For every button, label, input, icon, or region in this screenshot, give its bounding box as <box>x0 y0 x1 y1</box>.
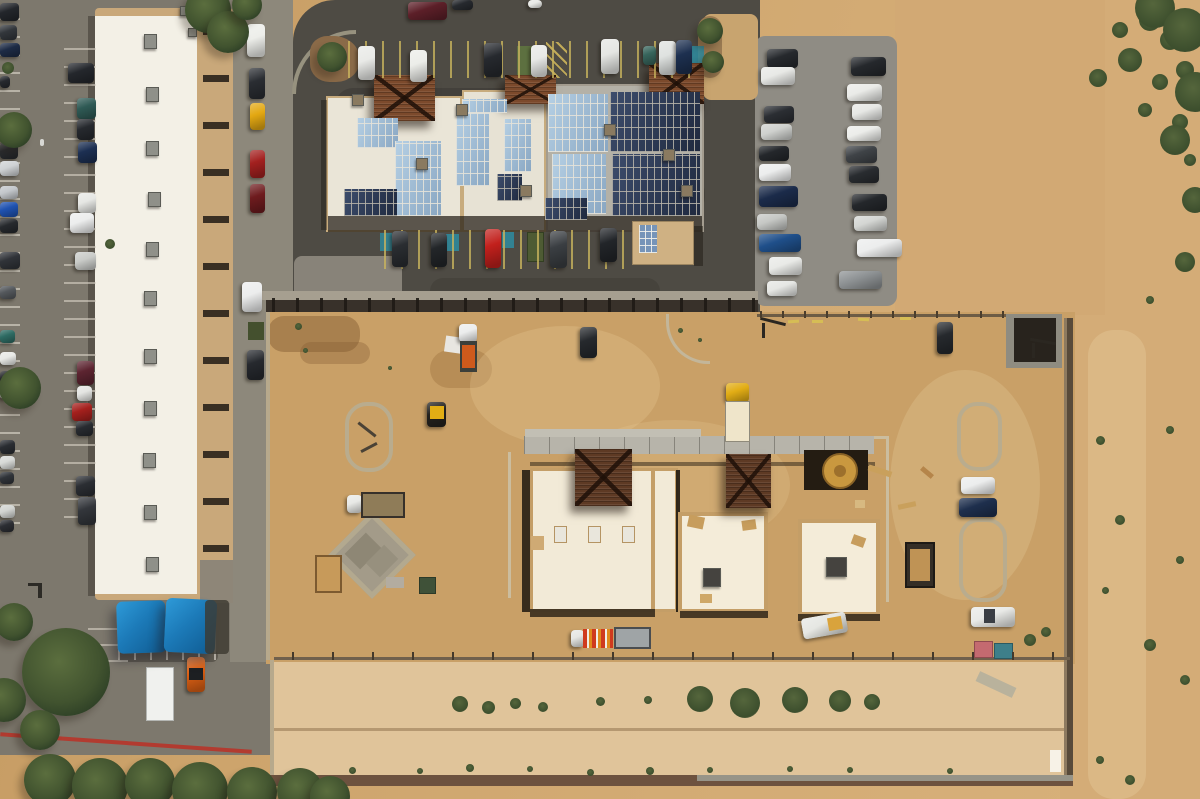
rooftop-hvac <box>144 505 157 520</box>
dump-truck-bed <box>361 492 405 518</box>
solar-roof-hvac <box>604 124 616 136</box>
fence-posts-ne <box>914 311 916 318</box>
fence-posts-ne <box>826 311 828 318</box>
desert-shrub <box>678 328 683 333</box>
parked-car <box>0 472 14 484</box>
stall-stripes-left-col2 <box>64 318 96 320</box>
solar-array <box>504 119 531 172</box>
fence-marks-mid <box>612 652 614 660</box>
construction-hvac <box>703 568 721 587</box>
stall-stripes-left-col1 <box>0 180 20 182</box>
solar-array <box>456 113 489 186</box>
parked-car <box>68 63 94 83</box>
skid-steer-cab <box>430 406 444 419</box>
wall-posts <box>584 298 587 312</box>
construction-shadow-s1 <box>530 609 655 617</box>
desert-shrub <box>587 769 594 776</box>
parked-car <box>0 3 19 21</box>
tree-canopy <box>697 18 723 44</box>
fence-posts-ne <box>980 311 982 318</box>
fence-marks-mid <box>492 652 494 660</box>
desert-shrub <box>1102 587 1109 594</box>
aerial-photo-construction-site <box>0 0 1200 799</box>
parked-car <box>410 50 427 82</box>
fence-marks-mid <box>732 652 734 660</box>
parked-car <box>959 498 997 517</box>
fence-marks-mid <box>1012 652 1014 660</box>
fence-posts-ne <box>760 311 762 318</box>
parked-car <box>0 456 15 469</box>
parked-car <box>600 228 617 262</box>
shade-canopy <box>116 600 167 654</box>
wall-posts <box>320 298 323 312</box>
old-stripe-mark <box>812 320 823 323</box>
parked-car <box>77 98 96 119</box>
wall-posts <box>440 298 443 312</box>
desert-shrub <box>596 697 605 706</box>
pedestrian <box>40 139 44 146</box>
parked-car <box>839 271 882 289</box>
parked-car <box>0 440 15 454</box>
tree-canopy <box>20 710 60 750</box>
desert-shrub <box>1096 436 1105 445</box>
stall-stripes-left-col2 <box>64 246 96 248</box>
porta-potty-green <box>419 577 436 594</box>
parked-car <box>849 166 879 183</box>
parked-car <box>392 231 408 267</box>
porta-potty-teal <box>994 643 1013 659</box>
concrete-sidewalk-upper <box>525 429 701 437</box>
fence-marks-mid <box>852 652 854 660</box>
wall-posts <box>296 298 299 312</box>
parked-car <box>759 146 789 161</box>
storefront-slots <box>203 122 229 129</box>
parked-car <box>659 41 676 75</box>
desert-shrub <box>349 767 356 774</box>
stall-stripes-main-row1 <box>467 41 469 78</box>
tree-canopy <box>317 42 347 72</box>
storefront-slots <box>203 357 229 364</box>
lumber-dumpster-wood <box>910 549 930 581</box>
patio-clutter <box>205 600 229 654</box>
solar-array <box>497 174 522 201</box>
parked-car <box>78 193 96 213</box>
stall-stripes-main-row1 <box>552 41 554 78</box>
bottom-wall-gray-cap <box>697 775 1073 781</box>
hatched-no-park-zone <box>546 42 567 78</box>
desert-shrub <box>707 767 713 773</box>
desert-shrub <box>388 366 392 370</box>
parked-car <box>0 161 19 176</box>
fence-marks-mid <box>692 652 694 660</box>
stall-stripes-left-col1 <box>0 270 20 272</box>
solar-roof-hvac <box>456 104 468 116</box>
landscape-island-a <box>345 402 393 472</box>
desert-shrub <box>1163 8 1200 52</box>
parked-car <box>0 505 15 518</box>
desert-shrub <box>1096 756 1104 764</box>
desert-shrub <box>510 698 521 709</box>
desert-shrub <box>829 690 851 712</box>
parked-car <box>250 103 265 130</box>
desert-shrub <box>864 694 880 710</box>
parked-car <box>757 214 787 230</box>
parked-car <box>601 39 619 74</box>
pickup-windshield <box>984 609 995 623</box>
shed-window-grid <box>639 225 657 253</box>
parked-car <box>852 194 887 211</box>
desert-shrub <box>1175 252 1195 272</box>
parked-car <box>78 497 96 525</box>
street-lamp-pole <box>38 585 42 598</box>
fence-marks-mid <box>892 652 894 660</box>
parked-car <box>580 327 597 358</box>
stall-stripes-main-row2 <box>520 230 522 269</box>
stall-stripes-main-row1 <box>433 41 435 78</box>
desert-shrub <box>847 767 853 773</box>
parked-car <box>77 119 94 140</box>
parked-car <box>643 46 656 65</box>
rooftop-hvac <box>144 34 157 49</box>
rooftop-hvac <box>144 349 157 364</box>
box-truck-box <box>725 401 750 442</box>
roof-vent-opening <box>622 526 635 543</box>
stall-stripes-left-col1 <box>0 108 20 110</box>
wall-posts <box>464 298 467 312</box>
parked-car <box>767 281 797 296</box>
tree-canopy <box>22 628 110 716</box>
parked-car <box>249 68 265 99</box>
parked-car <box>846 146 877 163</box>
stall-stripes-left-col2 <box>64 300 96 302</box>
tree-canopy <box>172 762 228 799</box>
parked-car <box>0 352 16 365</box>
desert-top-right-tint <box>895 0 1105 315</box>
parked-car <box>528 0 542 8</box>
stall-stripes-main-row2 <box>452 230 454 269</box>
desert-shrub <box>1160 125 1190 155</box>
rooftop-hvac <box>146 242 159 257</box>
teal-paint-stall <box>380 233 392 251</box>
fence-marks-mid <box>292 652 294 660</box>
parked-car <box>769 257 802 275</box>
wall-posts <box>272 298 275 312</box>
parked-car <box>485 229 501 268</box>
desert-shrub <box>1146 296 1154 304</box>
stall-stripes-left-col2 <box>64 174 96 176</box>
fence-marks-mid <box>532 652 534 660</box>
rooftop-hvac <box>144 401 157 416</box>
fence-posts-ne <box>804 311 806 318</box>
rooftop-hvac <box>148 192 161 207</box>
parked-car <box>851 57 886 76</box>
storefront-slots <box>203 263 229 270</box>
tree-canopy <box>0 367 41 409</box>
wall-posts <box>344 298 347 312</box>
parked-car <box>854 216 887 231</box>
stall-stripes-main-row2 <box>622 230 624 269</box>
wall-posts <box>752 298 755 312</box>
wall-posts <box>608 298 611 312</box>
parked-car <box>0 76 10 88</box>
desert-shrub <box>787 766 793 772</box>
equipment-pad <box>386 577 404 588</box>
storefront-slots <box>203 216 229 223</box>
desert-shrub <box>698 338 702 342</box>
solar-array <box>610 92 700 152</box>
building-curb-right <box>886 436 889 602</box>
stall-stripes-main-row1 <box>450 41 452 78</box>
parked-car <box>347 495 362 513</box>
tile-hip-roof <box>575 449 632 506</box>
wall-posts <box>728 298 731 312</box>
graded-pad <box>272 662 1073 778</box>
stall-stripes-main-row1 <box>518 41 520 78</box>
solar-roof-hvac <box>520 185 532 197</box>
parked-car <box>0 202 18 217</box>
stall-stripes-left-col1 <box>0 324 20 326</box>
storefront-slots <box>203 451 229 458</box>
parked-car <box>550 231 567 268</box>
parked-car <box>247 350 264 380</box>
site-left-curb <box>266 312 270 660</box>
orange-car-roof <box>189 668 203 680</box>
parked-car <box>77 386 92 401</box>
parked-car <box>408 2 447 20</box>
desert-shrub <box>782 687 808 713</box>
parked-car <box>852 104 882 120</box>
fence-posts-ne <box>892 311 894 318</box>
solar-array <box>344 189 397 216</box>
desert-shrub <box>295 323 302 330</box>
lumber <box>855 500 865 508</box>
mid-construction-fence <box>274 657 1070 660</box>
desert-shrub <box>452 696 468 712</box>
parked-car <box>452 0 473 10</box>
fence-marks-mid <box>572 652 574 660</box>
stall-stripes-main-row1 <box>382 41 384 78</box>
building-curb-left <box>508 452 511 598</box>
wall-posts <box>656 298 659 312</box>
tree-canopy <box>702 51 724 73</box>
storefront-slots <box>203 310 229 317</box>
white-marker <box>1050 750 1061 772</box>
right-wall-highlight <box>1064 318 1067 778</box>
roof-vent-opening <box>554 526 567 543</box>
parked-car <box>0 286 16 299</box>
rooftop-hvac <box>146 141 159 156</box>
parked-car <box>531 45 547 77</box>
desert-shrub <box>1089 69 1107 87</box>
rooftop-hvac <box>143 453 156 468</box>
parked-car <box>77 361 94 385</box>
desert-shrub <box>1152 74 1168 90</box>
desert-shrub <box>417 768 423 774</box>
solar-array <box>548 94 608 152</box>
parked-car <box>72 403 92 421</box>
desert-shrub <box>730 688 760 718</box>
construction-hvac <box>826 557 847 577</box>
tree-canopy <box>125 758 175 799</box>
landscape-island-c <box>959 518 1007 602</box>
construction-left-shadow <box>522 470 530 612</box>
storefront-slots <box>203 498 229 505</box>
tile-hip-roof <box>726 454 771 508</box>
construction-roof-midstrip <box>652 468 678 612</box>
tree-canopy <box>72 758 128 799</box>
parked-car <box>358 46 375 80</box>
desert-shrub <box>482 701 495 714</box>
solar-array <box>462 99 507 113</box>
wall-posts <box>416 298 419 312</box>
fence-marks-mid <box>412 652 414 660</box>
parked-car <box>759 234 801 252</box>
pad-berm-line <box>272 728 1073 731</box>
storefront-slots <box>203 75 229 82</box>
street-lamp-pole <box>1032 343 1035 358</box>
parked-car <box>459 324 477 342</box>
desert-shrub <box>1118 48 1142 72</box>
rooftop-hvac <box>146 557 159 572</box>
roof-vent-opening <box>588 526 601 543</box>
site-left-curb-lower <box>270 660 274 775</box>
stall-stripes-left-col2 <box>64 282 96 284</box>
street-lamp-arm <box>28 583 42 586</box>
wall-posts <box>704 298 707 312</box>
desert-shrub <box>1115 515 1125 525</box>
solar-roof-hvac <box>681 185 693 197</box>
desert-shrub <box>644 696 652 704</box>
parked-car <box>847 126 881 141</box>
parked-car <box>70 213 94 233</box>
tower-roof-hub <box>834 465 846 477</box>
parked-car <box>961 477 995 494</box>
solar-array <box>395 141 441 216</box>
parked-car <box>484 43 502 77</box>
fence-posts-ne <box>782 311 784 318</box>
fence-marks-mid <box>932 652 934 660</box>
stall-stripes-main-row1 <box>348 41 350 78</box>
solar-array <box>357 118 398 148</box>
wall-posts <box>392 298 395 312</box>
parked-car <box>78 142 97 163</box>
parked-car <box>759 164 791 181</box>
fence-posts-ne <box>936 311 938 318</box>
fence-marks-mid <box>772 652 774 660</box>
storefront-slots <box>203 404 229 411</box>
cardboard <box>700 594 712 603</box>
parked-car <box>761 124 792 140</box>
parked-car <box>76 421 93 436</box>
stall-stripes-main-row2 <box>418 230 420 269</box>
parked-car <box>0 520 14 532</box>
parked-car <box>761 67 795 85</box>
stall-stripes-main-row2 <box>537 230 539 269</box>
stall-stripes-left-col1 <box>0 414 20 416</box>
fence-marks-mid <box>332 652 334 660</box>
solar-roof-hvac <box>352 94 364 106</box>
parked-car <box>676 40 692 74</box>
construction-roof-bump <box>531 536 544 550</box>
parked-car <box>0 43 20 57</box>
fence-marks-mid <box>812 652 814 660</box>
old-stripe-mark <box>900 317 911 320</box>
stall-stripes-main-row2 <box>503 230 505 269</box>
stall-stripes-left-col2 <box>64 354 96 356</box>
stall-stripes-left-col2 <box>64 48 96 50</box>
stall-stripes-left-col2 <box>64 336 96 338</box>
solar-roof-hvac <box>663 149 675 161</box>
parked-car <box>250 184 265 213</box>
parked-car <box>0 252 20 269</box>
desert-dirt-road <box>1088 330 1146 799</box>
solar-building-west-shadow <box>321 100 327 230</box>
desert-shrub <box>1024 634 1036 646</box>
fence-marks-mid <box>652 652 654 660</box>
wall-posts <box>512 298 515 312</box>
fence-marks-mid <box>1052 652 1054 660</box>
stall-stripes-main-row2 <box>571 230 573 269</box>
desert-shrub <box>1180 675 1190 685</box>
stall-stripes-main-row2 <box>384 230 386 269</box>
stall-stripes-main-row1 <box>637 41 639 78</box>
green-dumpster <box>527 232 544 262</box>
parked-car <box>857 239 902 257</box>
desert-shrub <box>947 768 953 774</box>
parked-car <box>937 322 953 354</box>
desert-shrub <box>527 766 533 772</box>
parked-car <box>75 252 96 270</box>
solar-roof-hvac <box>416 158 428 170</box>
fence-marks-mid <box>372 652 374 660</box>
tarp-trailer <box>614 627 651 649</box>
storefront-slots <box>203 545 229 552</box>
old-stripe-mark <box>858 318 869 322</box>
stall-stripes-main-row1 <box>586 41 588 78</box>
parked-car <box>250 150 265 178</box>
wall-posts <box>488 298 491 312</box>
parked-car <box>0 330 15 343</box>
desert-shrub <box>1112 22 1128 38</box>
tile-hip-roof <box>374 75 435 121</box>
tree-canopy <box>24 754 76 799</box>
desert-shrub <box>538 702 548 712</box>
desert-shrub <box>1125 775 1135 785</box>
shed-shadow <box>694 226 703 266</box>
pickup-cargo-yellow <box>827 616 843 631</box>
fence-posts-ne <box>1002 311 1004 318</box>
parked-car <box>0 219 18 233</box>
solar-array <box>545 198 587 220</box>
cardboard <box>741 519 756 531</box>
fence-posts-ne <box>958 311 960 318</box>
strip-building-yard <box>200 560 233 603</box>
rooftop-hvac <box>146 87 159 102</box>
desert-shrub <box>1166 426 1174 434</box>
parked-car <box>759 186 798 207</box>
stall-stripes-left-col1 <box>0 486 20 488</box>
desert-shrub <box>1184 154 1196 166</box>
pallet-table <box>315 555 342 593</box>
desert-shrub <box>2 62 14 74</box>
parked-car <box>0 25 17 40</box>
ne-fence <box>757 314 1009 317</box>
stall-stripes-left-col1 <box>0 90 20 92</box>
desert-shrub <box>1041 627 1051 637</box>
fence-marks-mid <box>452 652 454 660</box>
construction-shadow-s2 <box>680 611 768 618</box>
fence-marks-mid <box>972 652 974 660</box>
